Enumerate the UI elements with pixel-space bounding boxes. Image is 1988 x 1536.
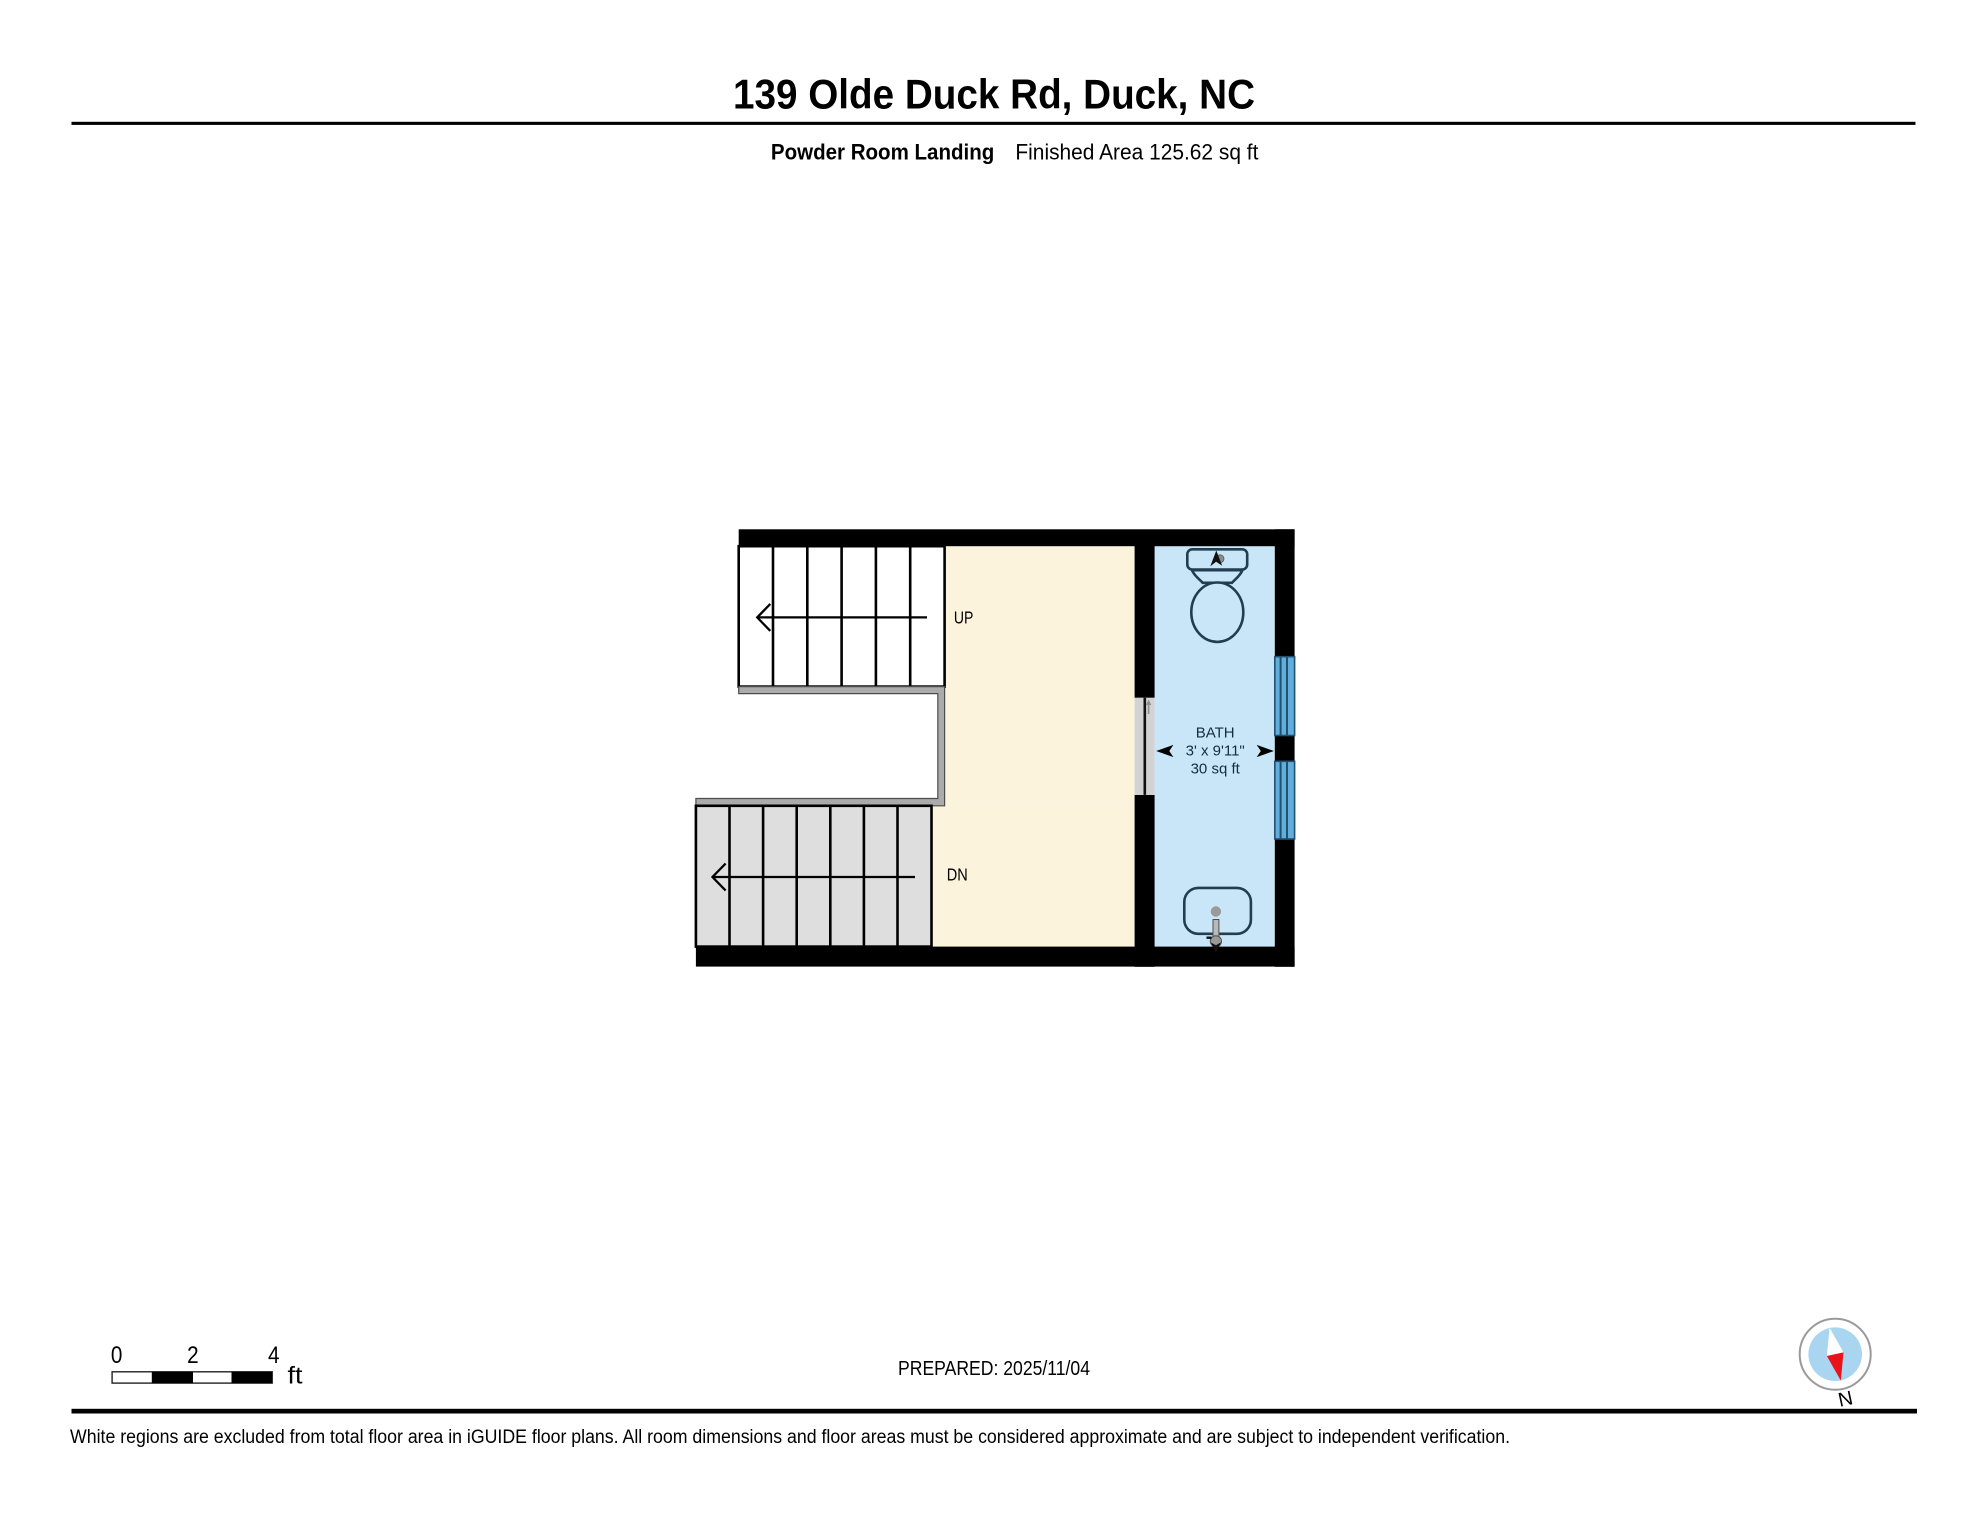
svg-text:3' x 9'11": 3' x 9'11"	[1186, 743, 1245, 760]
svg-text:PREPARED: 2025/11/04: PREPARED: 2025/11/04	[898, 1358, 1090, 1380]
svg-text:139 Olde Duck Rd, Duck, NC: 139 Olde Duck Rd, Duck, NC	[733, 70, 1255, 117]
svg-text:4: 4	[268, 1342, 280, 1369]
svg-text:ft: ft	[288, 1363, 303, 1390]
svg-text:30 sq ft: 30 sq ft	[1191, 760, 1241, 777]
svg-text:Powder Room Landing: Powder Room Landing	[771, 140, 994, 165]
svg-text:UP: UP	[954, 607, 974, 627]
svg-text:2: 2	[187, 1342, 199, 1369]
svg-text:White regions are excluded fro: White regions are excluded from total fl…	[70, 1427, 1510, 1448]
svg-text:0: 0	[111, 1342, 123, 1369]
svg-text:Finished Area 125.62 sq ft: Finished Area 125.62 sq ft	[1015, 140, 1258, 165]
svg-text:BATH: BATH	[1196, 725, 1235, 742]
svg-text:DN: DN	[947, 865, 968, 885]
